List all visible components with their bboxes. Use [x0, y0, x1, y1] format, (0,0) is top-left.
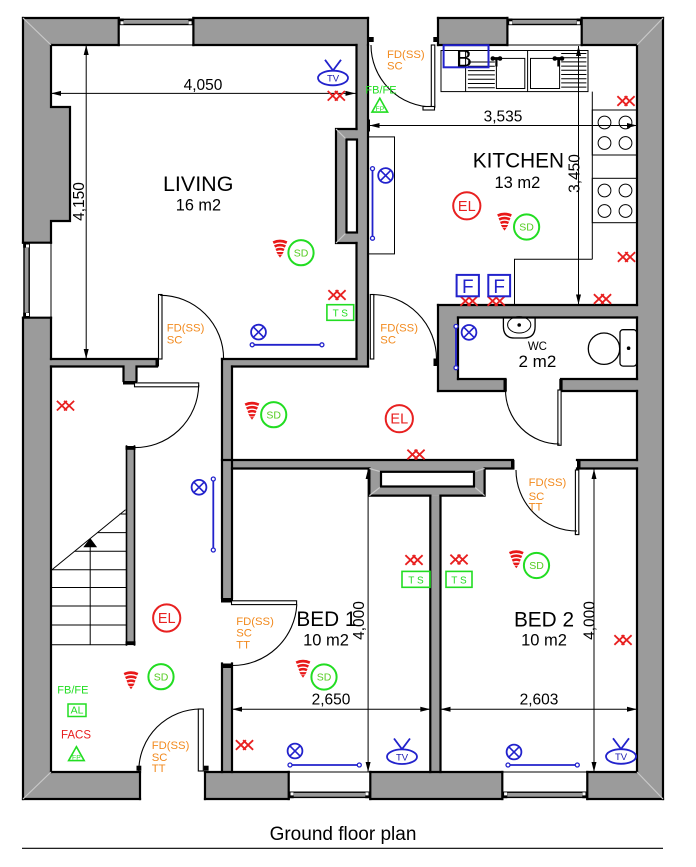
svg-text:4,050: 4,050: [184, 77, 223, 94]
svg-text:FB/FE: FB/FE: [57, 684, 88, 696]
svg-text:SC: SC: [236, 627, 252, 639]
svg-text:FD(SS): FD(SS): [387, 49, 425, 61]
svg-text:SC: SC: [380, 334, 396, 346]
svg-text:4,150: 4,150: [71, 182, 88, 221]
svg-text:4,000: 4,000: [582, 601, 599, 640]
svg-text:10 m2: 10 m2: [521, 632, 567, 650]
svg-text:2 m2: 2 m2: [519, 352, 557, 371]
svg-text:13 m2: 13 m2: [494, 174, 540, 192]
svg-text:T S: T S: [451, 575, 467, 586]
svg-text:FD(SS): FD(SS): [236, 616, 274, 628]
svg-text:BED 1: BED 1: [296, 608, 356, 631]
svg-text:10 m2: 10 m2: [303, 632, 349, 650]
svg-text:LIVING: LIVING: [163, 172, 234, 196]
svg-text:3,535: 3,535: [484, 109, 523, 126]
svg-text:SC: SC: [387, 61, 403, 73]
svg-text:TT: TT: [152, 763, 166, 775]
svg-text:B: B: [456, 45, 472, 72]
svg-text:T S: T S: [408, 575, 424, 586]
svg-text:FD(SS): FD(SS): [167, 323, 205, 335]
svg-text:T S: T S: [333, 308, 349, 319]
svg-text:2,603: 2,603: [520, 692, 559, 709]
svg-text:3,450: 3,450: [566, 154, 583, 193]
svg-text:FD(SS): FD(SS): [152, 740, 190, 752]
svg-text:KITCHEN: KITCHEN: [473, 149, 564, 172]
svg-text:SC: SC: [167, 334, 183, 346]
svg-text:16 m2: 16 m2: [176, 197, 221, 215]
svg-text:2,650: 2,650: [312, 692, 351, 709]
svg-text:FD(SS): FD(SS): [529, 477, 567, 489]
svg-text:F: F: [493, 277, 505, 298]
svg-text:F: F: [462, 277, 474, 298]
svg-text:FD(SS): FD(SS): [380, 323, 418, 335]
svg-text:Ground floor plan: Ground floor plan: [270, 824, 417, 845]
svg-text:TT: TT: [529, 502, 543, 514]
svg-text:TT: TT: [236, 640, 250, 652]
svg-text:AL: AL: [71, 705, 84, 717]
svg-text:FACS: FACS: [61, 729, 91, 741]
svg-text:FB/FE: FB/FE: [365, 85, 396, 97]
svg-text:BED 2: BED 2: [514, 608, 574, 631]
